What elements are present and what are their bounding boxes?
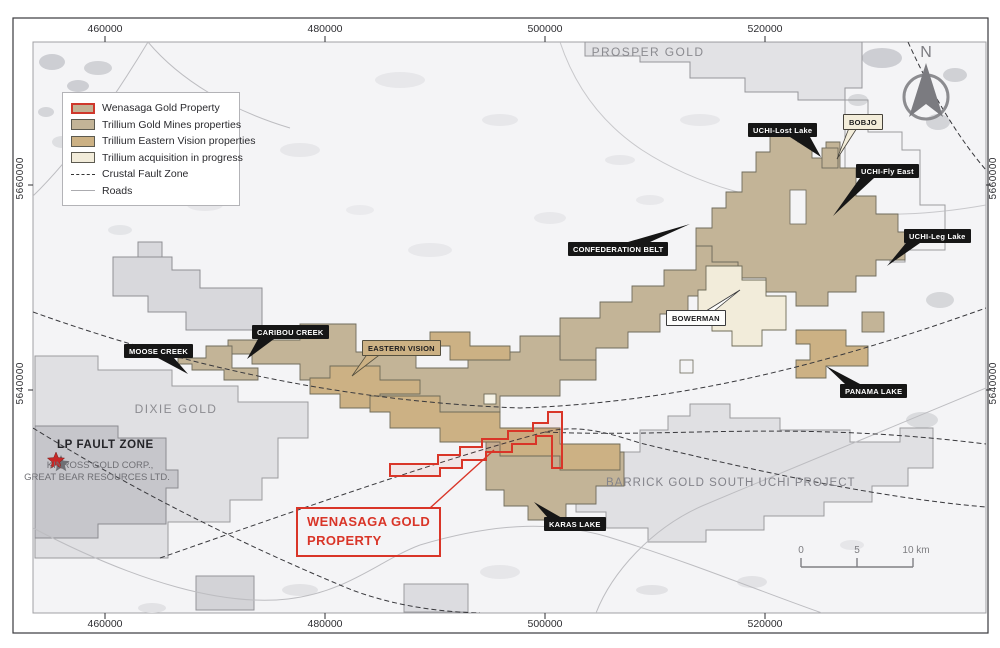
callout-uchi-fly-east: UCHI-Fly East [856,164,919,178]
label-dixie-gold: DIXIE GOLD [135,402,218,416]
legend: Wenasaga Gold Property Trillium Gold Min… [62,92,240,206]
axis-label-x-500000-bottom: 500000 [527,618,562,630]
eastern-vision-swatch [71,136,95,147]
legend-item-crustal-fault: Crustal Fault Zone [71,166,231,183]
legend-label: Roads [102,185,132,197]
callout-confederation-belt: CONFEDERATION BELT [568,242,668,256]
axis-label-x-460000-bottom: 460000 [87,618,122,630]
legend-label: Trillium Eastern Vision properties [102,135,255,147]
scale-label-0: 0 [798,545,804,556]
label-prosper-gold: PROSPER GOLD [592,45,705,59]
label-lp-fault-zone: LP FAULT ZONE [57,439,154,451]
axis-label-x-460000: 460000 [87,23,122,35]
callout-bobjo: BOBJO [843,114,883,130]
acquisition-swatch [71,152,95,163]
axis-label-y-5660000-left: 5660000 [15,157,26,199]
axis-label-x-480000: 480000 [307,23,342,35]
callout-moose-creek: MOOSE CREEK [124,344,193,358]
legend-item-wenasaga: Wenasaga Gold Property [71,100,231,117]
legend-item-gold-mines: Trillium Gold Mines properties [71,117,231,134]
callout-uchi-leg-lake: UCHI-Leg Lake [904,229,971,243]
axis-label-y-5640000-left: 5640000 [15,362,26,404]
legend-label: Wenasaga Gold Property [102,102,220,114]
gold-mines-swatch [71,119,95,130]
axis-label-x-520000: 520000 [747,23,782,35]
wenasaga-callout-box: WENASAGA GOLD PROPERTY [296,507,441,557]
fault-line-swatch [71,174,95,175]
legend-label: Trillium Gold Mines properties [102,119,241,131]
scale-label-10km: 10 km [902,545,929,556]
wenasaga-callout-line2: PROPERTY [307,532,430,551]
scale-label-5: 5 [854,545,860,556]
north-label: N [920,44,932,62]
axis-label-x-520000-bottom: 520000 [747,618,782,630]
callout-karas-lake: KARAS LAKE [544,517,606,531]
callout-caribou-creek: CARIBOU CREEK [252,325,329,339]
map-figure: 460000 480000 500000 520000 460000 48000… [0,0,1000,648]
axis-label-x-480000-bottom: 480000 [307,618,342,630]
legend-label: Crustal Fault Zone [102,168,188,180]
legend-label: Trillium acquisition in progress [102,152,243,164]
callout-uchi-lost-lake: UCHI-Lost Lake [748,123,817,137]
axis-label-y-5660000-right: 5660000 [988,157,999,199]
road-line-swatch [71,190,95,191]
label-kinross: KINROSS GOLD CORP., [47,460,153,471]
label-barrick-south-uchi: BARRICK GOLD SOUTH UCHI PROJECT [606,477,856,489]
callout-bowerman: BOWERMAN [666,310,726,326]
wenasaga-callout-line1: WENASAGA GOLD [307,513,430,532]
axis-label-y-5640000-right: 5640000 [988,362,999,404]
label-great-bear: GREAT BEAR RESOURCES LTD. [24,472,170,483]
axis-label-x-500000: 500000 [527,23,562,35]
wenasaga-swatch [71,103,95,114]
legend-item-acquisition: Trillium acquisition in progress [71,150,231,167]
callout-panama-lake: PANAMA LAKE [840,384,907,398]
legend-item-roads: Roads [71,183,231,200]
callout-eastern-vision: EASTERN VISION [362,340,441,356]
legend-item-eastern-vision: Trillium Eastern Vision properties [71,133,231,150]
